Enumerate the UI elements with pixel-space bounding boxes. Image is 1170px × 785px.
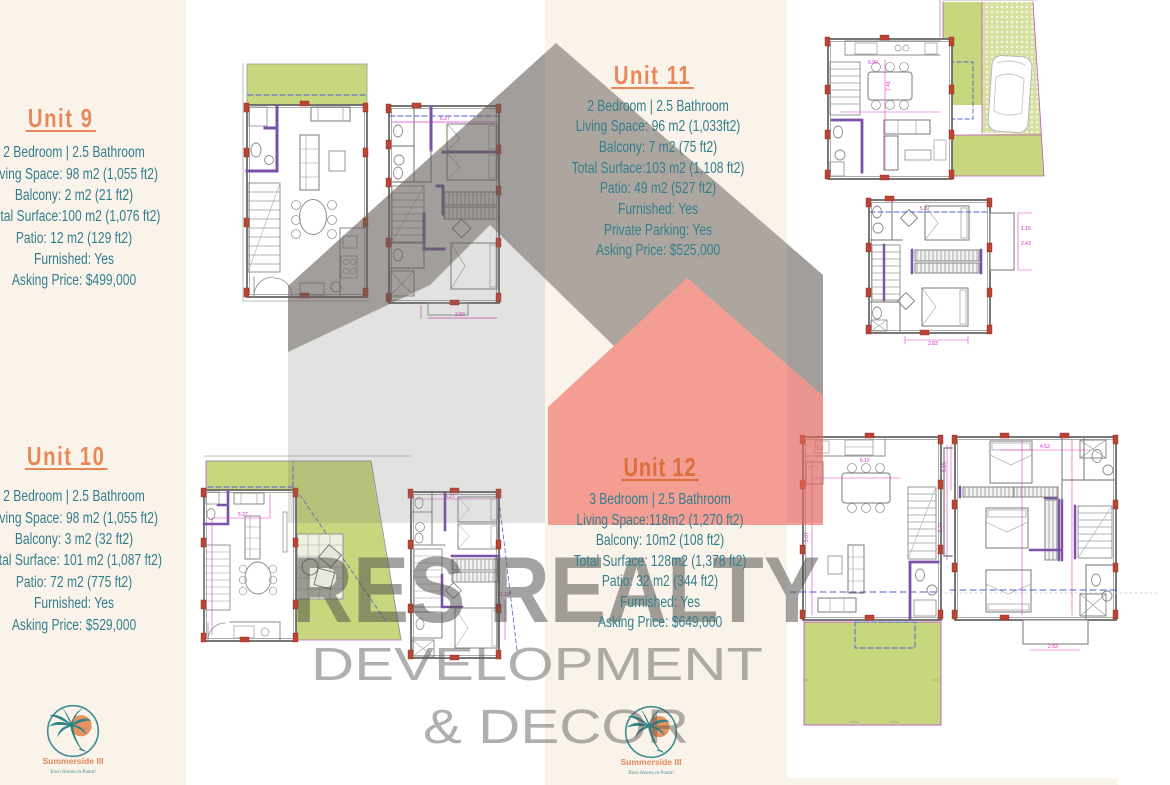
svg-text:DEVELOPMENT: DEVELOPMENT <box>311 638 763 690</box>
svg-text:& DECOR: & DECOR <box>423 701 689 754</box>
